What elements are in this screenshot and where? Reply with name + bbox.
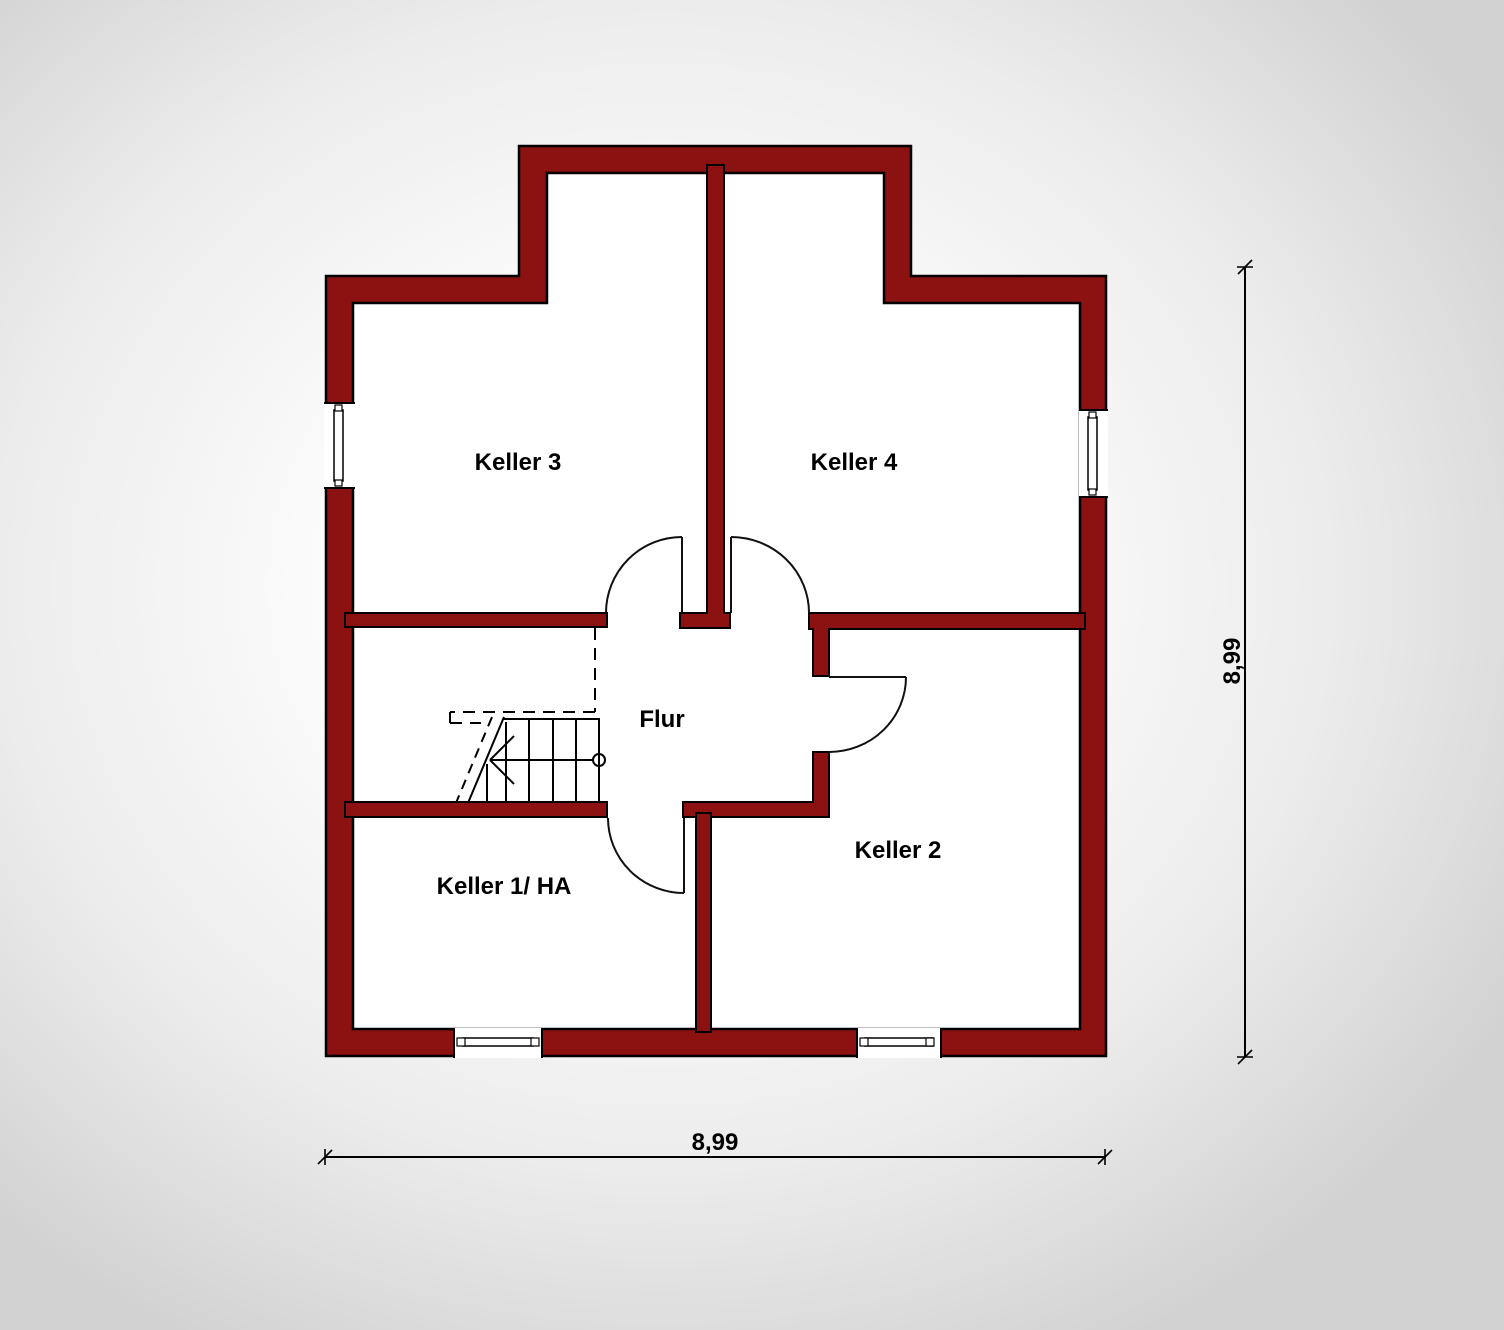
floor-plan-canvas: Keller 3 Keller 4 Flur Keller 1/ HA Kell… <box>0 0 1504 1330</box>
room-label-flur: Flur <box>639 706 684 733</box>
wall-keller1-keller2-divider <box>696 813 711 1032</box>
dimension-right-value: 8,99 <box>1219 638 1246 685</box>
room-label-keller2: Keller 2 <box>855 837 942 864</box>
floor-plan-drawing: Keller 3 Keller 4 Flur Keller 1/ HA Kell… <box>0 0 1504 1330</box>
wall-keller3-stairroom <box>345 613 607 627</box>
room-label-keller1-ha: Keller 1/ HA <box>437 873 572 900</box>
dimension-bottom-value: 8,99 <box>692 1129 739 1156</box>
window-bottom-left <box>454 1028 542 1058</box>
wall-stairroom-keller1 <box>345 802 607 817</box>
room-label-keller4: Keller 4 <box>811 449 898 476</box>
room-label-keller3: Keller 3 <box>475 449 562 476</box>
window-left <box>324 403 355 488</box>
window-bottom-right <box>857 1028 941 1058</box>
window-right <box>1079 410 1108 497</box>
